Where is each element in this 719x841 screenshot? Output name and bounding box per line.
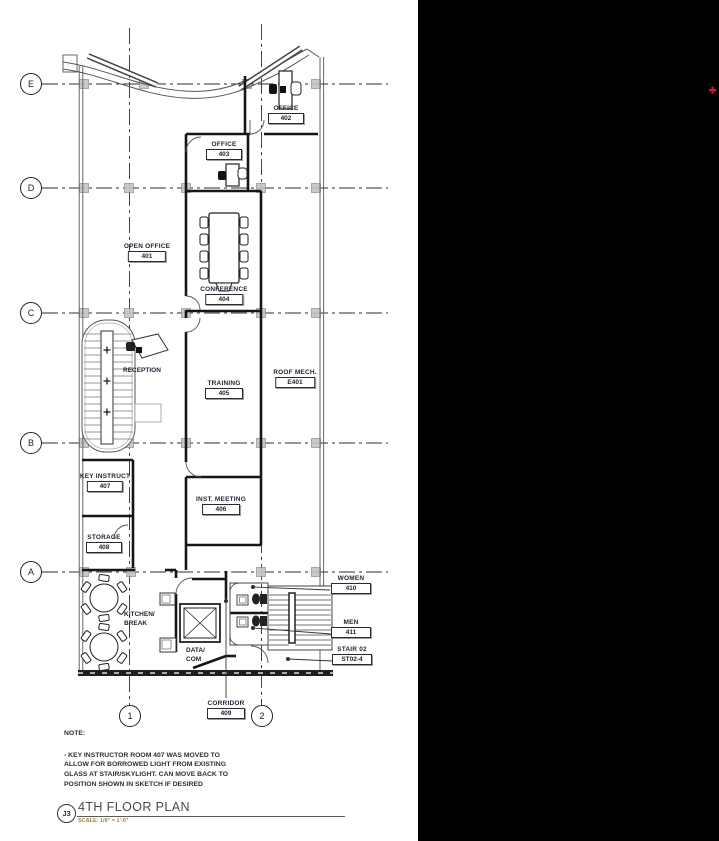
note-heading: NOTE: xyxy=(64,729,228,739)
room-label-key-instruct-407: KEY INSTRUCT 407 xyxy=(80,473,130,492)
room-number-tag: 404 xyxy=(205,294,243,305)
note-block: NOTE: - KEY INSTRUCTOR ROOM 407 WAS MOVE… xyxy=(64,729,228,790)
room-name: STORAGE xyxy=(86,534,122,541)
note-line: POSITION SHOWN IN SKETCH IF DESIRED xyxy=(64,780,228,790)
room-label-conference-404: CONFERENCE 404 xyxy=(200,286,248,305)
office-desks xyxy=(218,71,301,186)
room-label-office-403: OFFICE 403 xyxy=(206,141,242,160)
room-number-tag: 407 xyxy=(87,481,123,492)
room-name: TRAINING xyxy=(205,380,243,387)
grid-bubble-2: 2 xyxy=(251,705,273,727)
note-line: GLASS AT STAIR/SKYLIGHT. CAN MOVE BACK T… xyxy=(64,770,228,780)
kitchen-break-label: KITCHEN/ BREAK xyxy=(124,610,155,628)
kitchen-label-line2: BREAK xyxy=(124,619,155,628)
note-line: ALLOW FOR BORROWED LIGHT FROM EXISTING xyxy=(64,760,228,770)
room-name: INST. MEETING xyxy=(196,496,246,503)
room-name: OFFICE xyxy=(268,105,304,112)
grid-bubble-1: 1 xyxy=(119,705,141,727)
room-name: CONFERENCE xyxy=(200,286,248,293)
room-label-roof-mech-e401: ROOF MECH. E401 xyxy=(273,369,317,388)
kitchen-tables xyxy=(81,574,128,670)
room-name: CORRIDOR xyxy=(207,700,245,707)
door-arcs xyxy=(114,120,268,663)
data-com-shaft xyxy=(160,593,220,652)
room-name: OPEN OFFICE xyxy=(124,243,170,250)
stair-02 xyxy=(268,586,332,650)
room-number-tag: 406 xyxy=(202,504,240,515)
grid-bubble-d: D xyxy=(20,177,42,199)
plan-drawing xyxy=(0,0,719,841)
grid-bubble-a: A xyxy=(20,561,42,583)
conference-table xyxy=(200,213,248,291)
data-label-line1: DATA/ xyxy=(186,646,205,655)
room-name: WOMEN xyxy=(331,575,371,582)
room-number-tag: 403 xyxy=(206,149,242,160)
room-name: MEN xyxy=(331,619,371,626)
room-label-men-411: MEN 411 xyxy=(331,619,371,638)
room-name: ROOF MECH. xyxy=(273,369,317,376)
room-number-tag: 411 xyxy=(331,627,371,638)
sheet-title: 4TH FLOOR PLAN xyxy=(78,800,190,814)
data-label-line2: COM xyxy=(186,655,205,664)
room-number-tag: 401 xyxy=(128,251,166,262)
room-number-tag: 402 xyxy=(268,113,304,124)
data-com-label: DATA/ COM xyxy=(186,646,205,664)
detail-reference-bubble: J3 xyxy=(57,804,76,823)
note-line: - KEY INSTRUCTOR ROOM 407 WAS MOVED TO xyxy=(64,751,228,761)
room-name: OFFICE xyxy=(206,141,242,148)
bottom-wall xyxy=(78,670,333,676)
room-label-women-410: WOMEN 410 xyxy=(331,575,371,594)
room-label-corridor-409: CORRIDOR 409 xyxy=(207,700,245,719)
grid-bubble-b: B xyxy=(20,432,42,454)
title-underline xyxy=(77,816,345,817)
room-number-tag: 405 xyxy=(205,388,243,399)
room-label-training-405: TRAINING 405 xyxy=(205,380,243,399)
floor-plan-sheet: E D C B A 1 2 OFFICE 402 OFFICE 403 OPEN… xyxy=(0,0,719,841)
grid-bubble-c: C xyxy=(20,302,42,324)
room-number-tag: 408 xyxy=(86,542,122,553)
room-label-inst-meeting-406: INST. MEETING 406 xyxy=(196,496,246,515)
room-number-tag: E401 xyxy=(275,377,315,388)
room-number-tag: 410 xyxy=(331,583,371,594)
room-label-open-office-401: OPEN OFFICE 401 xyxy=(124,243,170,262)
room-label-stair-02: STAIR 02 ST02-4 xyxy=(332,646,372,665)
scale-note: SCALE: 1/8" = 1'-0" xyxy=(78,818,128,824)
room-number-tag: 409 xyxy=(207,708,245,719)
black-panel xyxy=(418,0,719,841)
grid-bubble-e: E xyxy=(20,73,42,95)
room-number-tag: ST02-4 xyxy=(332,654,372,665)
kitchen-label-line1: KITCHEN/ xyxy=(124,610,155,619)
room-label-storage-408: STORAGE 408 xyxy=(86,534,122,553)
room-label-office-402: OFFICE 402 xyxy=(268,105,304,124)
room-name: KEY INSTRUCT xyxy=(80,473,130,480)
reception-label: RECEPTION xyxy=(123,366,161,375)
room-name: STAIR 02 xyxy=(332,646,372,653)
